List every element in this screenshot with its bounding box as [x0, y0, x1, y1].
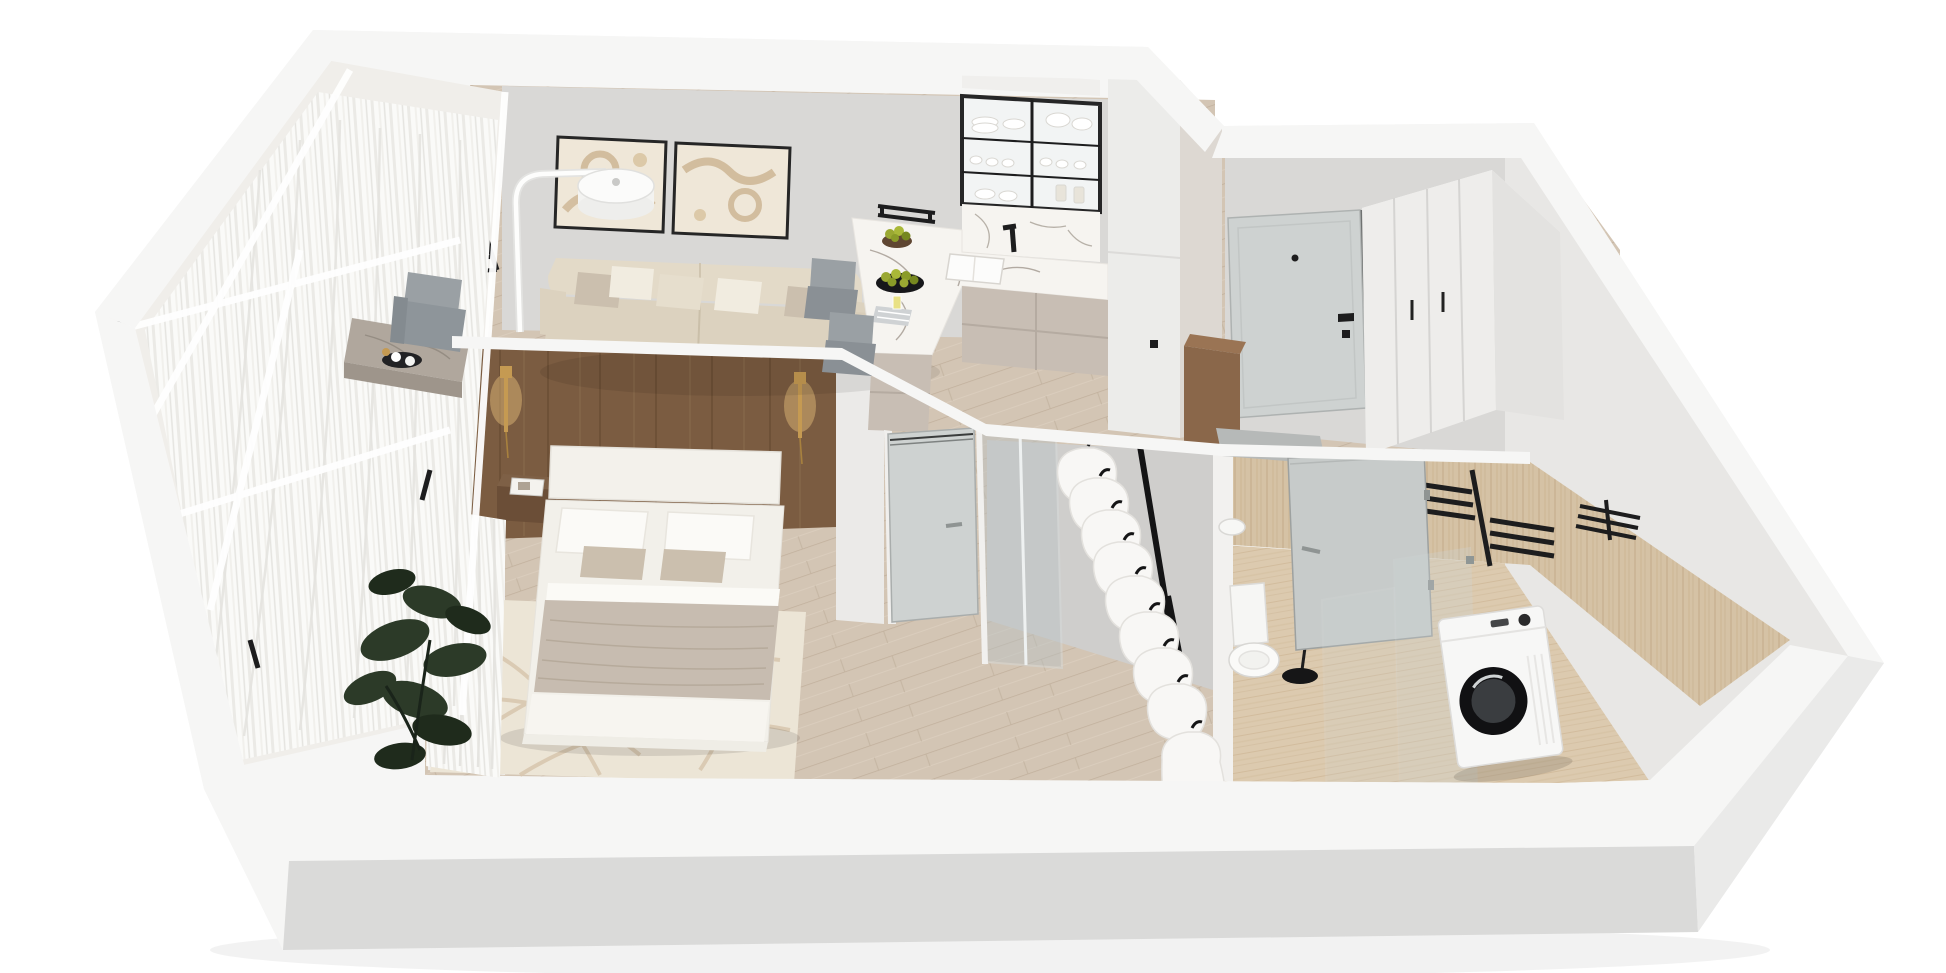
white-wardrobe	[1362, 170, 1564, 455]
closet-bath-divider-top	[1213, 448, 1233, 782]
decanter	[382, 348, 390, 356]
band-entry-top	[1212, 123, 1534, 158]
bedroom-door	[884, 428, 978, 624]
peephole	[1292, 255, 1299, 262]
glass-partition	[976, 427, 1062, 668]
bed-pillow-taupe	[660, 549, 726, 583]
abstract-artwork-right	[673, 143, 790, 238]
bed-headboard	[549, 446, 781, 504]
sofa-pillow	[609, 266, 654, 300]
wall-socket	[1150, 340, 1158, 348]
sofa-pillow	[656, 274, 704, 310]
door-lock	[1342, 330, 1350, 338]
mattress-foot	[526, 694, 769, 742]
apartment-render	[0, 0, 1946, 973]
floor-plan-svg	[0, 0, 1946, 973]
band-bottom-face	[283, 846, 1698, 950]
balcony	[106, 70, 505, 772]
sofa-pillow	[714, 278, 762, 314]
pedestal-basin	[1219, 519, 1245, 535]
front-door	[1228, 210, 1368, 418]
glass-display-cabinet	[962, 96, 1100, 212]
bed-pillow-taupe	[580, 546, 646, 580]
door-handle	[946, 524, 962, 526]
door-handle	[1338, 313, 1354, 322]
sink	[946, 254, 1004, 284]
